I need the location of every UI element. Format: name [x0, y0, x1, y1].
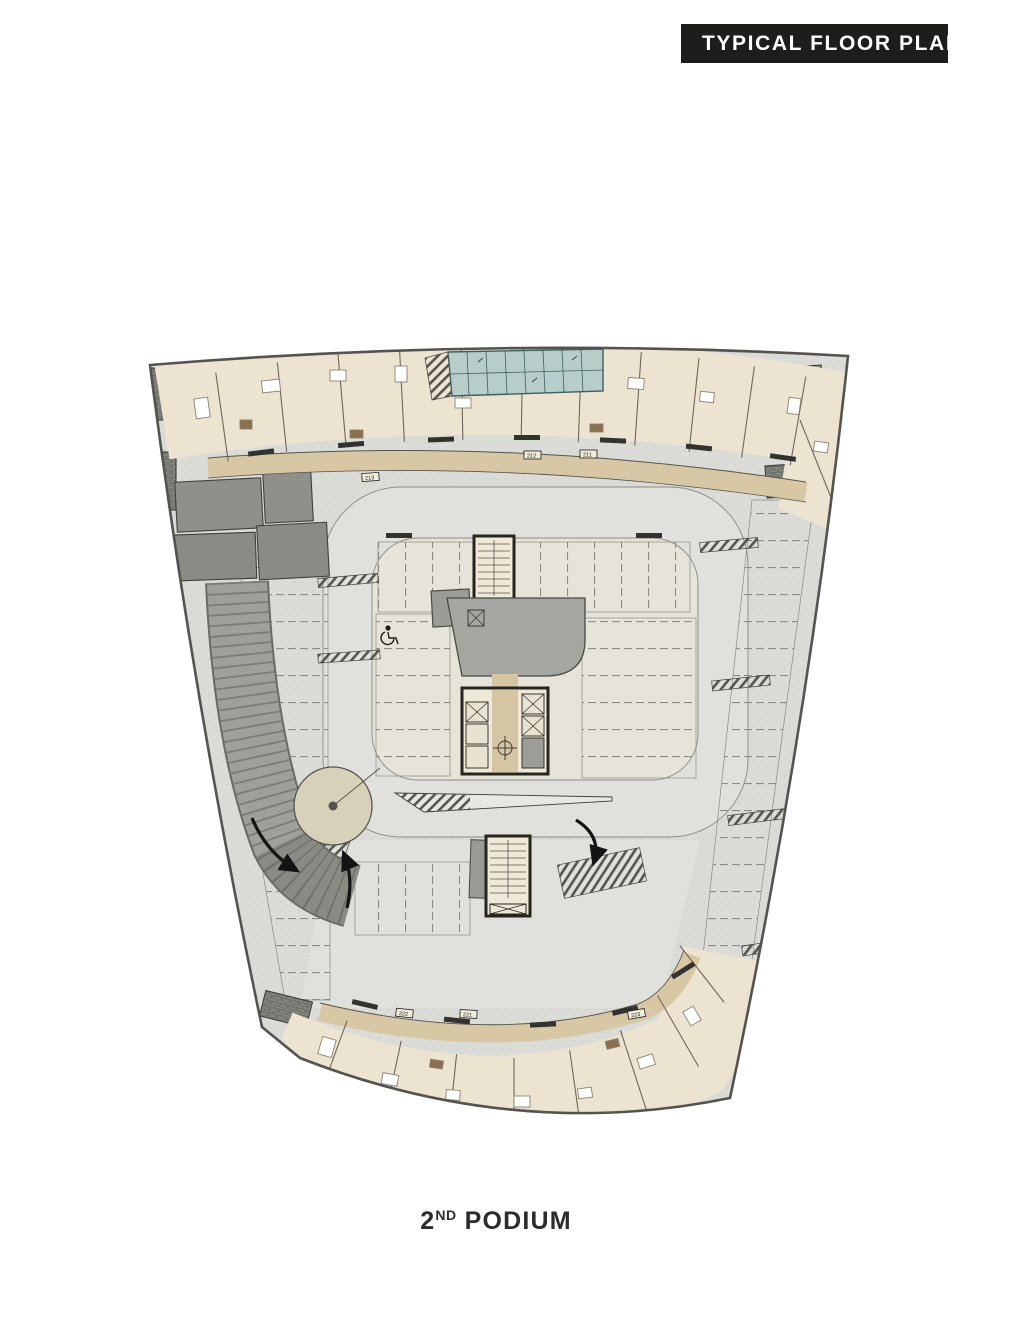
elevator-core [462, 674, 548, 774]
unit-tag: 212 [527, 454, 536, 460]
pool-strip [425, 349, 603, 400]
floor-plan: 213 212 211 222 221 [0, 0, 1018, 1330]
unit-tag: 221 [463, 1012, 472, 1018]
brochure-page: TYPICAL FLOOR PLAN [0, 0, 1018, 1330]
unit-tag: 211 [583, 453, 592, 459]
plan-caption: 2NDPODIUM [420, 1207, 572, 1236]
caption-text: PODIUM [465, 1207, 572, 1235]
unit-tag: 222 [399, 1011, 409, 1018]
caption-ordinal: ND [435, 1207, 456, 1223]
caption-number: 2 [420, 1207, 435, 1235]
unit-tag: 213 [365, 475, 375, 482]
